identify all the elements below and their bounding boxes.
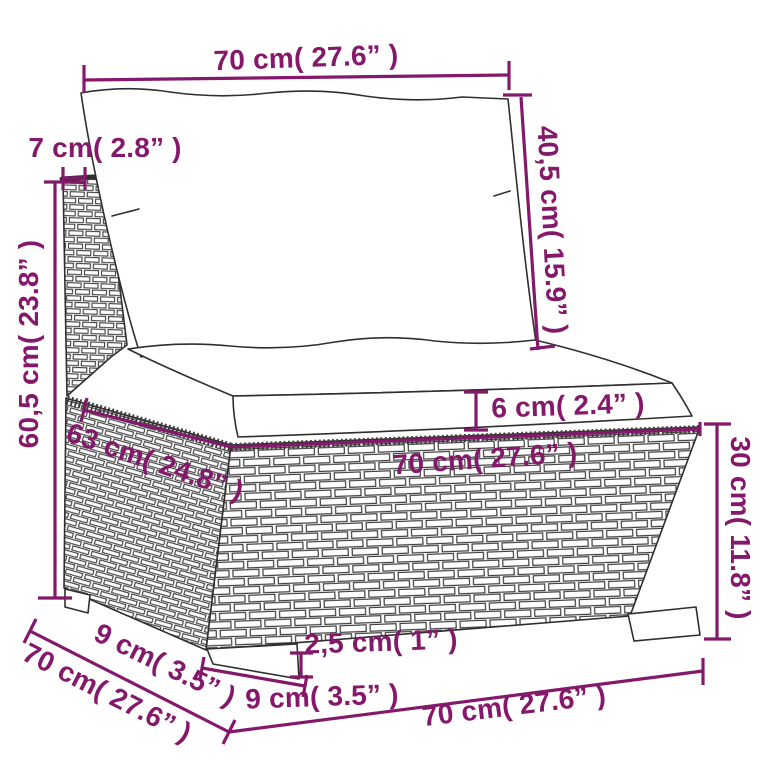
dim-label-base-height: 30 cm( 11.8” ) bbox=[726, 436, 754, 619]
sofa-sketch bbox=[62, 89, 700, 679]
dim-label-back-thickness: 7 cm( 2.8” ) bbox=[28, 134, 181, 162]
back-cushion bbox=[81, 89, 537, 357]
dim-label-back-width: 70 cm( 27.6” ) bbox=[213, 41, 399, 75]
dim-label-seat-cushion-thickness: 6 cm( 2.4” ) bbox=[491, 389, 645, 422]
dim-label-foot-height: 2,5 cm( 1” ) bbox=[304, 625, 458, 658]
dim-label-foot-width: 9 cm( 3.5” ) bbox=[245, 680, 399, 713]
dimension-diagram: 70 cm( 27.6” ) 7 cm( 2.8” ) 40,5 cm( 15.… bbox=[0, 0, 767, 767]
foot-front-right bbox=[628, 607, 700, 641]
dim-label-total-height: 60,5 cm( 23.8” ) bbox=[15, 240, 43, 449]
